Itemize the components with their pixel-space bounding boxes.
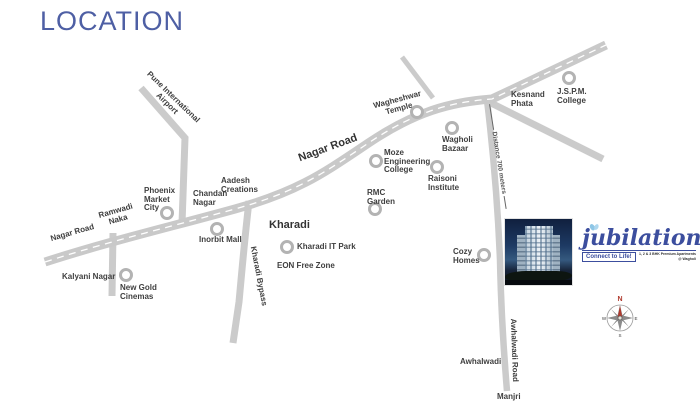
page-title: LOCATION	[40, 6, 184, 37]
road-kharadi-bypass	[233, 201, 249, 343]
landmark-label-raisoni-institute: Raisoni Institute	[428, 175, 459, 192]
building-photo	[504, 218, 573, 286]
road-label-nagar-road-center: Nagar Road	[297, 132, 359, 164]
road-ramwadi	[112, 233, 113, 296]
svg-text:E: E	[634, 316, 637, 321]
leader-line	[504, 196, 507, 209]
leader-line	[489, 104, 494, 130]
area-label-kharadi: Kharadi	[269, 219, 310, 231]
jubilation-logo: jubilation Connect to Life! 1, 2 & 3 BHK…	[582, 226, 696, 262]
area-label-awhalwadi: Awhalwadi	[460, 358, 501, 367]
landmark-label-aadesh-creations: Aadesh Creations	[221, 177, 258, 194]
area-label-manjri: Manjri	[497, 393, 521, 402]
distance-annotation: Distance 700 meters	[486, 104, 510, 212]
landmark-label-kharadi-it-park: Kharadi IT Park	[297, 243, 356, 252]
road-label-nagar-road-west: Nagar Road	[50, 223, 96, 244]
road-label-kharadi-bypass: Kharadi Bypass	[248, 246, 268, 307]
svg-text:S: S	[618, 333, 621, 338]
logo-fine-print: 1, 2 & 3 BHK Premium Apartments @ Waghol…	[639, 252, 696, 261]
landmark-label-wagholi-bazaar: Wagholi Bazaar	[442, 136, 473, 153]
road-kesnand-branch	[489, 102, 603, 159]
compass-rose-icon: N W E S	[599, 292, 641, 338]
road-label-pune-airport: Pune International Airport	[137, 69, 202, 133]
landmark-label-eon-free-zone: EON Free Zone	[277, 262, 335, 271]
map-marker-jspm-college	[562, 71, 576, 85]
landmark-label-kalyani-nagar: Kalyani Nagar	[62, 273, 115, 282]
landmark-label-moze-college: Moze Engineering College	[384, 149, 430, 175]
map-marker-wagholi-bazaar	[445, 121, 459, 135]
map-marker-kharadi-it-park	[280, 240, 294, 254]
map-marker-new-gold-cinemas	[119, 268, 133, 282]
map-marker-moze-college	[369, 154, 383, 168]
logo-tagline: Connect to Life!	[582, 252, 636, 262]
landmark-label-cozy-homes: Cozy Homes	[453, 248, 480, 265]
logo-subline: Connect to Life! 1, 2 & 3 BHK Premium Ap…	[582, 250, 696, 262]
building-tower	[525, 226, 553, 275]
road-label-awhalwadi-road: Awhalwadi Road	[508, 318, 519, 382]
road-network-map	[0, 0, 700, 415]
butterfly-icon	[589, 223, 600, 233]
location-map-page: LOCATION Nagar Road Ramwadi Naka Pune In…	[0, 0, 700, 415]
svg-text:N: N	[617, 296, 622, 303]
svg-text:W: W	[602, 316, 607, 321]
map-marker-raisoni-institute	[430, 160, 444, 174]
landmark-label-kesnand-phata: Kesnand Phata	[511, 91, 545, 108]
landmark-label-inorbit-mall: Inorbit Mall	[199, 236, 242, 245]
landmark-label-phoenix-market-city: Phoenix Market City	[144, 187, 175, 213]
road-label-ramwadi-naka: Ramwadi Naka	[95, 202, 138, 229]
map-marker-inorbit-mall	[210, 222, 224, 236]
ground	[505, 280, 572, 285]
landmark-label-rmc-garden: RMC Garden	[367, 189, 395, 206]
landmark-label-new-gold-cinemas: New Gold Cinemas	[120, 284, 157, 301]
landmark-label-jspm-college: J.S.P.M. College	[557, 88, 587, 105]
